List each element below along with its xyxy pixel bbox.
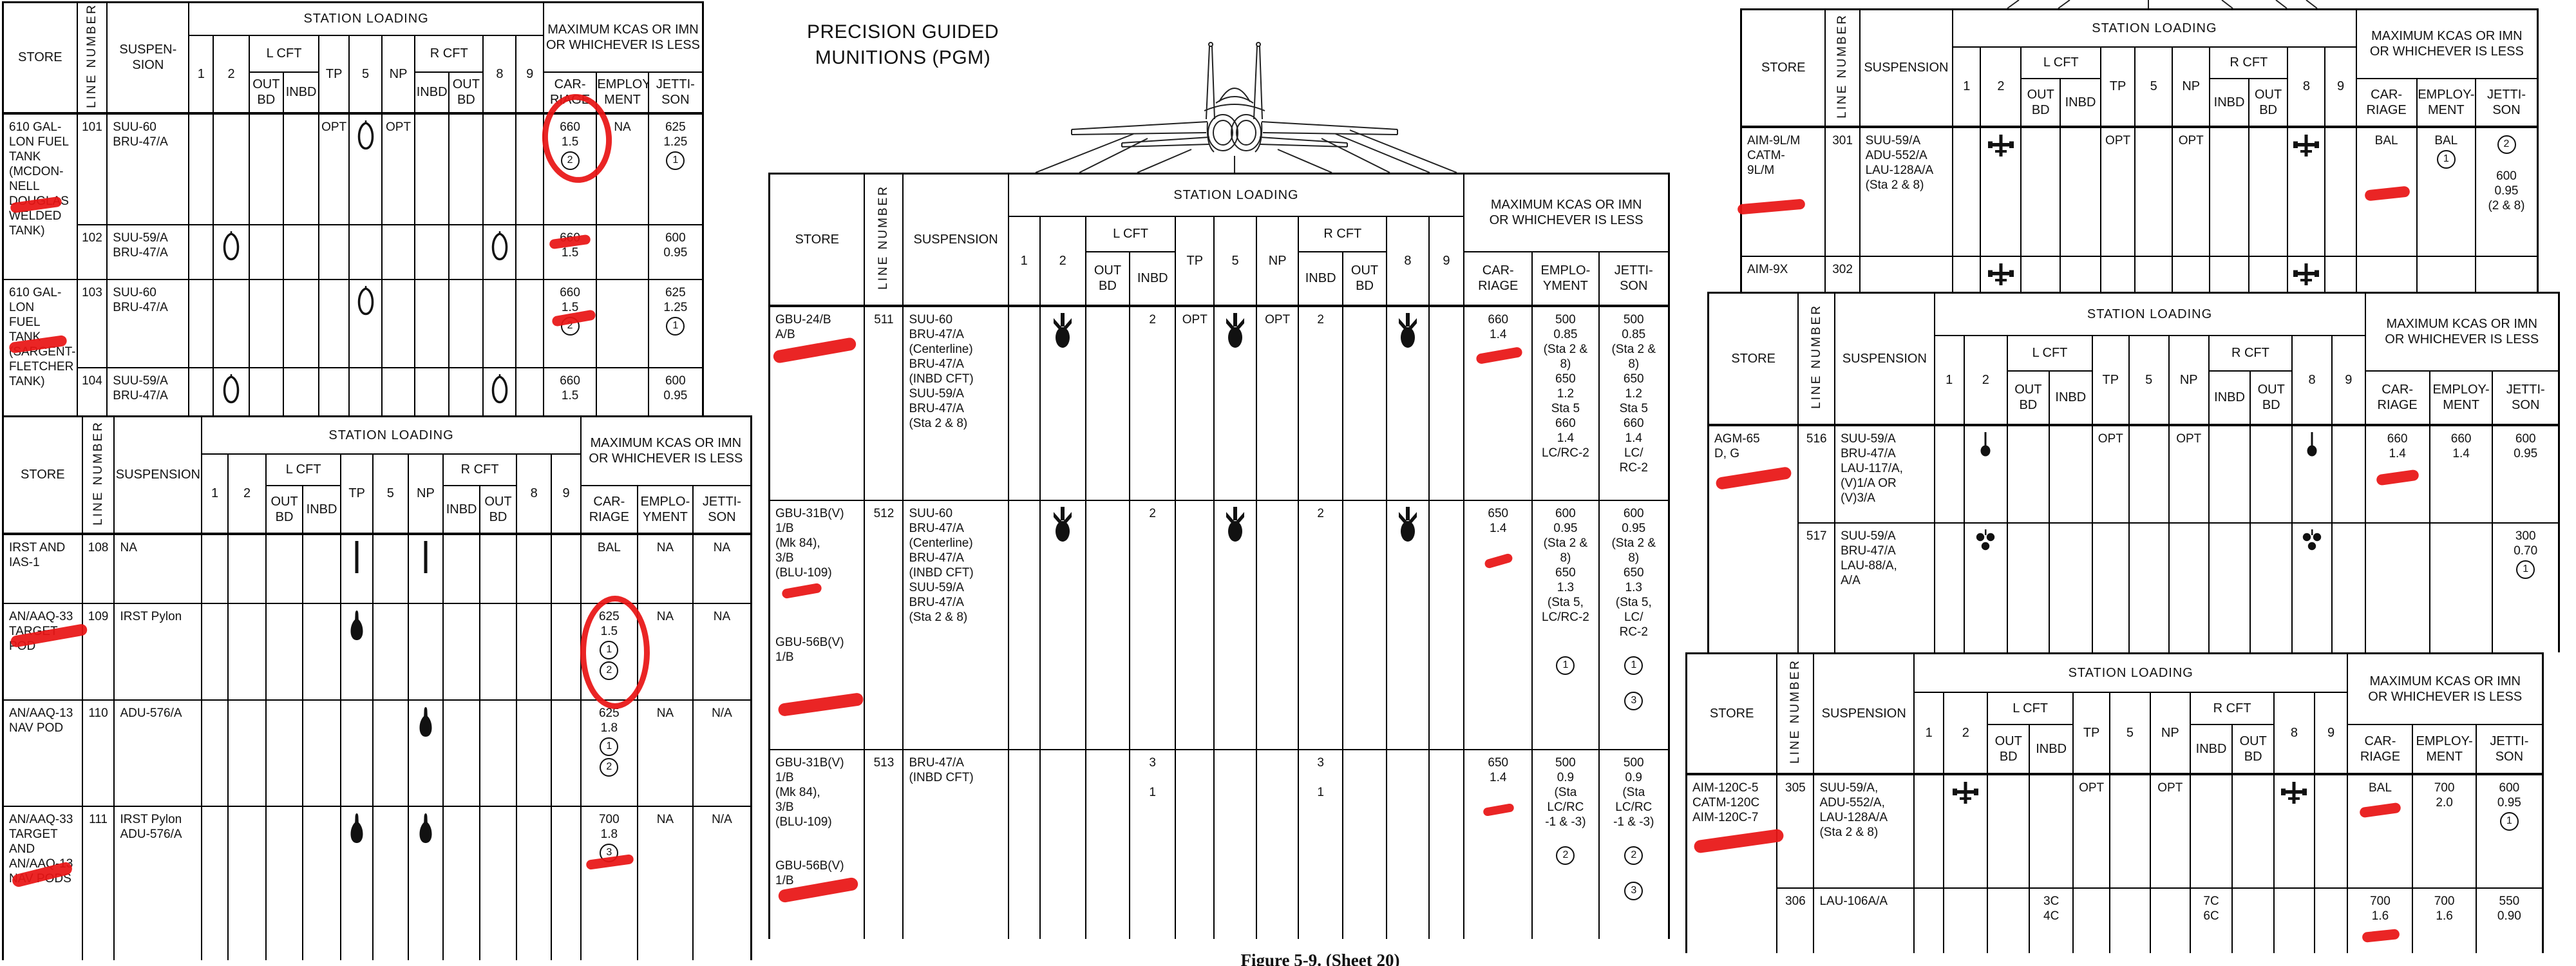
header-line-number: LINE NUMBER: [864, 174, 903, 306]
header-sta-9: 9: [2325, 47, 2356, 127]
cell-station-8: [1343, 500, 1387, 750]
cell-station-3: [303, 534, 341, 603]
cell-employment: 600 0.95 (Sta 2 & 8) 650 1.3 (Sta 5, LC/…: [1532, 500, 1598, 750]
header-jettison: JETTI- SON: [1599, 252, 1669, 306]
cell-station-6: [408, 534, 444, 603]
cell-station-1: [1040, 306, 1086, 500]
cell-suspension: SUU-59/A BRU-47/A LAU-117/A, (V)1/A OR (…: [1835, 425, 1934, 523]
cell-jettison: [2476, 256, 2538, 294]
cell-store: AIM-120C-5 CATM-120C AIM-120C-7: [1687, 774, 1777, 954]
cell-station-2: [2021, 127, 2060, 256]
cell-store: AN/AAQ-33 TARGET POD: [3, 603, 82, 700]
cell-station-10: [1429, 500, 1464, 750]
header-suspension: SUSPEN- SION: [107, 3, 189, 113]
cell-station-10: [551, 700, 580, 806]
header-sta-tp: TP: [1175, 216, 1214, 306]
cell-station-9: [2287, 256, 2325, 294]
cell-jettison: N/A: [693, 700, 752, 806]
header-sta-1: 1: [189, 35, 213, 113]
fuel-tank-icon: [222, 231, 241, 245]
cell-employment: NA: [638, 806, 693, 961]
missile-icon: [2280, 781, 2307, 795]
cell-line-number: 305: [1777, 774, 1814, 888]
circled-note-number: 2: [1624, 846, 1643, 865]
cell-store: GBU-24/B A/B: [770, 306, 865, 500]
cell-station-2: [266, 806, 303, 961]
cell-jettison: 500 0.85 (Sta 2 & 8) 650 1.2 Sta 5 660 1…: [1599, 306, 1669, 500]
header-max-kcas: MAXIMUM KCAS OR IMN OR WHICHEVER IS LESS: [581, 417, 752, 486]
cell-carriage: BAL: [2347, 774, 2412, 888]
header-r-cft: R CFT: [415, 35, 483, 72]
circled-note-number: 2: [600, 758, 618, 777]
cell-station-10: [2325, 127, 2356, 256]
header-l-cft: L CFT: [2007, 336, 2092, 371]
circled-note-number: 3: [1624, 692, 1643, 710]
cell-station-8: [449, 225, 483, 279]
cell-suspension: SUU-59/A BRU-47/A: [107, 225, 189, 279]
header-sta-8: 8: [2287, 47, 2325, 127]
cell-station-5: [2135, 256, 2172, 294]
cell-station-8: [449, 368, 483, 415]
store-row-516: AGM-65 D, G516SUU-59/A BRU-47/A LAU-117/…: [1709, 425, 2559, 523]
cell-station-9: [1387, 750, 1429, 940]
circled-note-number: 1: [2516, 560, 2535, 579]
store-row-511: GBU-24/B A/B511SUU-60 BRU-47/A (Centerli…: [770, 306, 1669, 500]
cell-station-0: [189, 113, 213, 225]
cell-jettison: 550 0.90: [2476, 888, 2543, 954]
cell-station-4: [319, 279, 349, 368]
cell-station-0: [1914, 774, 1944, 888]
store-row-110: AN/AAQ-13 NAV POD110ADU-576/A625 1.8 1 2…: [3, 700, 752, 806]
cell-station-6: OPT: [1256, 306, 1299, 500]
cell-station-3: [2049, 523, 2092, 653]
header-sta-1: 1: [1914, 692, 1944, 774]
cell-station-2: [1086, 750, 1130, 940]
section-title-line1: PRECISION GUIDED: [787, 19, 1019, 45]
cell-jettison: 600 0.95: [649, 225, 703, 279]
header-suspension: SUSPENSION: [114, 417, 202, 534]
cell-station-1: [1964, 425, 2007, 523]
cell-station-9: [483, 113, 516, 225]
bomb-icon: [1396, 507, 1419, 520]
cell-line-number: 108: [82, 534, 115, 603]
cell-jettison: 625 1.25 1: [649, 279, 703, 368]
circled-note-number: 1: [1624, 656, 1643, 675]
pod-icon: [349, 610, 365, 623]
cell-station-9: [2287, 127, 2325, 256]
header-sta-8: 8: [2292, 336, 2332, 425]
header-l-cft: L CFT: [1987, 692, 2073, 724]
cell-station-6: OPT: [382, 113, 415, 225]
cell-station-4: OPT: [319, 113, 349, 225]
bomb-icon: [1051, 313, 1074, 327]
cell-station-2: [2007, 425, 2049, 523]
cell-station-7: [415, 225, 449, 279]
cell-station-3: [2049, 425, 2092, 523]
cell-station-6: [382, 279, 415, 368]
header-r-outbd: OUT BD: [449, 72, 483, 113]
cell-station-1: [1980, 127, 2021, 256]
cell-carriage: BAL: [581, 534, 638, 603]
header-l-outbd: OUT BD: [1987, 724, 2029, 774]
cell-station-8: [2232, 774, 2274, 888]
cell-station-0: [202, 806, 228, 961]
cell-station-2: [249, 368, 283, 415]
header-l-cft: L CFT: [266, 454, 341, 486]
cell-station-7: [443, 700, 480, 806]
cell-station-7: 2: [1298, 306, 1342, 500]
store-row-111: AN/AAQ-33 TARGET AND AN/AAQ-13 NAV PODS1…: [3, 806, 752, 961]
bomb-icon: [1396, 313, 1419, 327]
cell-station-5: [349, 368, 382, 415]
cell-station-2: [1086, 500, 1130, 750]
header-sta-tp: TP: [319, 35, 349, 113]
cell-carriage: [2365, 523, 2430, 653]
red-annotation-t2-109-carriage-circle: [580, 596, 650, 709]
cell-line-number: 109: [82, 603, 115, 700]
header-suspension: SUSPENSION: [1835, 293, 1934, 425]
header-sta-9: 9: [516, 35, 543, 113]
cell-line-number: 306: [1777, 888, 1814, 954]
header-jettison: JETTI- SON: [2476, 79, 2538, 127]
header-jettison: JETTI- SON: [2476, 724, 2543, 774]
cell-station-2: [1086, 306, 1130, 500]
header-carriage: CAR- RIAGE: [2356, 79, 2417, 127]
header-sta-9: 9: [1429, 216, 1464, 306]
cell-station-4: [2092, 523, 2129, 653]
cell-carriage: 660 1.5: [544, 368, 597, 415]
header-l-inbd: INBD: [2029, 724, 2073, 774]
cell-station-4: OPT: [1175, 306, 1214, 500]
header-sta-np: NP: [2169, 336, 2209, 425]
cell-station-7: [2210, 256, 2249, 294]
f15-front-view-drawing: [960, 26, 1539, 173]
cell-station-2: [249, 113, 283, 225]
stores-table-fuel-tanks: STORELINE NUMBERSUSPEN- SIONSTATION LOAD…: [2, 1, 704, 415]
cell-station-9: [2292, 523, 2332, 653]
header-sta-1: 1: [1953, 47, 1980, 127]
fuel-tank-icon: [222, 374, 241, 388]
cell-station-6: OPT: [2150, 774, 2190, 888]
cell-station-8: [449, 279, 483, 368]
cell-station-7: [415, 279, 449, 368]
cell-station-2: [249, 279, 283, 368]
header-l-inbd: INBD: [1130, 252, 1175, 306]
header-sta-tp: TP: [2101, 47, 2135, 127]
cell-station-8: [1343, 306, 1387, 500]
cell-station-2: [2021, 256, 2060, 294]
fuel-tank-icon: [356, 286, 375, 299]
cell-station-2: [249, 225, 283, 279]
cell-suspension: IRST Pylon ADU-576/A: [114, 806, 202, 961]
cell-station-10: [2325, 256, 2356, 294]
cell-jettison: 600 0.95: [649, 368, 703, 415]
cell-station-1: [1980, 256, 2021, 294]
cell-station-7: [2209, 523, 2251, 653]
cell-station-4: [2101, 256, 2135, 294]
cell-station-1: [1040, 500, 1086, 750]
cell-station-4: [341, 534, 373, 603]
cell-employment: [596, 279, 648, 368]
header-sta-np: NP: [2172, 47, 2210, 127]
store-row-306: 306LAU-106A/A3C 4C7C 6C700 1.6700 1.6550…: [1687, 888, 2543, 954]
cell-station-5: [373, 806, 408, 961]
header-sta-5: 5: [349, 35, 382, 113]
header-sta-tp: TP: [2073, 692, 2110, 774]
cell-station-5: [1214, 750, 1256, 940]
header-sta-np: NP: [408, 454, 444, 534]
table-fragment-aim9: STORELINE NUMBERSUSPENSIONSTATION LOADIN…: [1740, 8, 2539, 293]
cell-station-10: [1429, 750, 1464, 940]
store-row-108: IRST AND IAS-1108NABALNANA: [3, 534, 752, 603]
cell-suspension: IRST Pylon: [114, 603, 202, 700]
cell-station-0: [1914, 888, 1944, 954]
cell-jettison: NA: [693, 534, 752, 603]
cell-suspension: SUU-59/A BRU-47/A LAU-88/A, A/A: [1835, 523, 1934, 653]
cell-station-5: [2135, 127, 2172, 256]
stores-table-aim9: STORELINE NUMBERSUSPENSIONSTATION LOADIN…: [1740, 8, 2539, 293]
cell-suspension: SUU-59/A, ADU-552/A, LAU-128A/A (Sta 2 &…: [1814, 774, 1913, 888]
cell-station-5: [349, 279, 382, 368]
header-l-outbd: OUT BD: [266, 486, 303, 534]
cell-suspension: SUU-60 BRU-47/A (Centerline) BRU-47/A (I…: [903, 306, 1008, 500]
header-r-outbd: OUT BD: [2250, 371, 2292, 425]
stores-table-aim120: STORELINE NUMBERSUSPENSIONSTATION LOADIN…: [1685, 652, 2544, 953]
cell-store: AIM-9X: [1741, 256, 1826, 294]
cell-line-number: 511: [864, 306, 903, 500]
bomb-icon: [1224, 507, 1247, 520]
header-sta-5: 5: [2110, 692, 2150, 774]
cell-store: GBU-31B(V) 1/B (Mk 84), 3/B (BLU-109)GBU…: [770, 750, 865, 940]
cell-station-8: [480, 534, 516, 603]
pod-icon: [418, 706, 433, 720]
cell-station-7: [443, 534, 480, 603]
cell-station-2: [1987, 888, 2029, 954]
cell-station-0: [1935, 523, 1964, 653]
header-sta-tp: TP: [341, 454, 373, 534]
cell-carriage: 625 1.8 1 2: [581, 700, 638, 806]
cell-carriage: 650 1.4: [1464, 500, 1532, 750]
cell-station-6: OPT: [2172, 127, 2210, 256]
cell-station-4: [341, 806, 373, 961]
header-l-outbd: OUT BD: [249, 72, 283, 113]
cell-carriage: 660 1.4: [1464, 306, 1532, 500]
missile-icon: [1952, 781, 1979, 795]
header-sta-5: 5: [2129, 336, 2169, 425]
header-r-inbd: INBD: [2210, 79, 2249, 127]
cell-line-number: 102: [77, 225, 108, 279]
cell-station-2: [266, 603, 303, 700]
header-sta-2: 2: [1040, 216, 1086, 306]
header-r-outbd: OUT BD: [2249, 79, 2288, 127]
stores-table-pgm: STORELINE NUMBERSUSPENSIONSTATION LOADIN…: [768, 173, 1670, 939]
cell-station-7: [2209, 425, 2251, 523]
section-title: PRECISION GUIDED MUNITIONS (PGM): [787, 19, 1019, 71]
header-carriage: CAR- RIAGE: [2365, 371, 2430, 425]
header-jettison: JETTI- SON: [693, 486, 752, 534]
header-r-inbd: INBD: [1298, 252, 1342, 306]
cell-station-10: [2315, 888, 2348, 954]
header-max-kcas: MAXIMUM KCAS OR IMN OR WHICHEVER IS LESS: [1464, 174, 1669, 252]
cell-station-6: [1256, 750, 1299, 940]
cell-carriage: [2356, 256, 2417, 294]
cell-employment: 500 0.9 (Sta LC/RC -1 & -3) 2: [1532, 750, 1598, 940]
fuel-tank-icon: [490, 374, 509, 388]
cell-station-7: [2210, 127, 2249, 256]
cell-station-9: [516, 603, 552, 700]
header-employment: EMPLOY- MENT: [2412, 724, 2476, 774]
cell-station-1: [228, 700, 266, 806]
cell-employment: 500 0.85 (Sta 2 & 8) 650 1.2 Sta 5 660 1…: [1532, 306, 1598, 500]
cell-station-10: [551, 603, 580, 700]
cell-station-9: [516, 806, 552, 961]
cell-station-1: [228, 603, 266, 700]
header-sta-5: 5: [373, 454, 408, 534]
header-l-outbd: OUT BD: [2021, 79, 2060, 127]
cell-line-number: 104: [77, 368, 108, 415]
cell-station-3: [303, 806, 341, 961]
cell-store: AN/AAQ-13 NAV POD: [3, 700, 82, 806]
cell-station-9: [483, 368, 516, 415]
header-r-inbd: INBD: [415, 72, 449, 113]
cell-station-5: [349, 113, 382, 225]
header-max-kcas: MAXIMUM KCAS OR IMN OR WHICHEVER IS LESS: [2356, 10, 2538, 79]
header-l-inbd: INBD: [2060, 79, 2101, 127]
header-l-cft: L CFT: [2021, 47, 2101, 79]
cell-station-5: [373, 700, 408, 806]
cell-station-10: [516, 368, 543, 415]
cell-station-4: [1175, 750, 1214, 940]
cell-station-1: [213, 225, 249, 279]
cell-jettison: 500 0.9 (Sta LC/RC -1 & -3) 2 3: [1599, 750, 1669, 940]
header-r-inbd: INBD: [2190, 724, 2232, 774]
cell-line-number: 101: [77, 113, 108, 225]
cell-jettison: 600 0.95 1: [2476, 774, 2543, 888]
missile-icon: [1987, 134, 2014, 147]
header-store: STORE: [3, 417, 82, 534]
cell-station-10: [551, 806, 580, 961]
cell-store: AGM-65 D, G: [1709, 425, 1799, 653]
cell-suspension: ADU-576/A: [114, 700, 202, 806]
header-line-number: LINE NUMBER: [1798, 293, 1835, 425]
header-carriage: CAR- RIAGE: [1464, 252, 1532, 306]
cell-station-6: [408, 603, 444, 700]
cell-jettison: 300 0.70 1: [2492, 523, 2559, 653]
header-line-number: LINE NUMBER: [1825, 10, 1859, 127]
cell-station-0: [189, 225, 213, 279]
cell-station-1: [1944, 774, 1987, 888]
cell-station-6: [382, 225, 415, 279]
cell-station-2: [2007, 523, 2049, 653]
cell-station-5: [349, 225, 382, 279]
header-sta-8: 8: [1387, 216, 1429, 306]
cell-station-3: 2: [1130, 500, 1175, 750]
header-station-loading: STATION LOADING: [189, 3, 543, 35]
cell-employment: [596, 368, 648, 415]
cell-suspension: LAU-106A/A: [1814, 888, 1913, 954]
cell-suspension: SUU-60 BRU-47/A: [107, 279, 189, 368]
header-store: STORE: [3, 3, 77, 113]
header-line-number: LINE NUMBER: [77, 3, 108, 113]
cell-station-1: [213, 368, 249, 415]
store-row-513: GBU-31B(V) 1/B (Mk 84), 3/B (BLU-109)GBU…: [770, 750, 1669, 940]
cell-station-2: [266, 700, 303, 806]
pod-icon: [418, 813, 433, 826]
header-max-kcas: MAXIMUM KCAS OR IMN OR WHICHEVER IS LESS: [2347, 654, 2543, 724]
maverick-icon: [2306, 432, 2318, 446]
cell-station-8: [2249, 256, 2288, 294]
circled-note-number: 1: [2500, 812, 2519, 831]
header-r-cft: R CFT: [1298, 216, 1387, 252]
header-employment: EMPLOY- MENT: [2417, 79, 2476, 127]
header-sta-2: 2: [213, 35, 249, 113]
cell-station-4: [1175, 500, 1214, 750]
circled-note-number: 3: [1624, 882, 1643, 900]
header-station-loading: STATION LOADING: [1009, 174, 1464, 216]
cell-station-8: [1343, 750, 1387, 940]
triple-icon: [1974, 529, 1997, 543]
header-l-inbd: INBD: [2049, 371, 2092, 425]
cell-station-6: [2150, 888, 2190, 954]
cell-employment: 700 1.6: [2412, 888, 2476, 954]
cell-station-6: OPT: [2169, 425, 2209, 523]
fuel-tank-icon: [356, 120, 375, 134]
cell-station-7: 2: [1298, 500, 1342, 750]
cell-station-6: [382, 368, 415, 415]
circled-note-number: 1: [2437, 150, 2456, 169]
header-sta-2: 2: [1944, 692, 1987, 774]
missile-icon: [2293, 263, 2320, 276]
cell-suspension: [1860, 256, 1953, 294]
cell-station-7: [415, 368, 449, 415]
cell-station-4: [319, 368, 349, 415]
header-sta-np: NP: [1256, 216, 1299, 306]
header-sta-1: 1: [1009, 216, 1040, 306]
cell-jettison: N/A: [693, 806, 752, 961]
header-r-cft: R CFT: [2209, 336, 2292, 371]
cell-station-8: [2232, 888, 2274, 954]
header-sta-2: 2: [1980, 47, 2021, 127]
cell-station-5: [2110, 888, 2150, 954]
store-row-305: AIM-120C-5 CATM-120C AIM-120C-7305SUU-59…: [1687, 774, 2543, 888]
header-r-outbd: OUT BD: [480, 486, 516, 534]
header-sta-1: 1: [1935, 336, 1964, 425]
cell-station-10: [2315, 774, 2348, 888]
header-suspension: SUSPENSION: [903, 174, 1008, 306]
header-sta-tp: TP: [2092, 336, 2129, 425]
table-fragment-aim120: STORELINE NUMBERSUSPENSIONSTATION LOADIN…: [1685, 652, 2544, 953]
header-r-inbd: INBD: [2209, 371, 2251, 425]
header-l-cft: L CFT: [249, 35, 319, 72]
cell-station-1: [1040, 750, 1086, 940]
cell-station-3: [2060, 256, 2101, 294]
cell-station-4: [2073, 888, 2110, 954]
header-station-loading: STATION LOADING: [202, 417, 580, 454]
cell-station-6: [1256, 500, 1299, 750]
cell-station-3: [283, 113, 319, 225]
header-store: STORE: [1709, 293, 1799, 425]
header-store: STORE: [1741, 10, 1826, 127]
cell-store: AIM-9L/M CATM- 9L/M: [1741, 127, 1826, 256]
cell-station-3: [283, 279, 319, 368]
cell-station-4: OPT: [2073, 774, 2110, 888]
cell-station-8: [449, 113, 483, 225]
header-max-kcas: MAXIMUM KCAS OR IMN OR WHICHEVER IS LESS: [544, 3, 703, 72]
cell-store: IRST AND IAS-1: [3, 534, 82, 603]
cell-jettison: 600 0.95 (Sta 2 & 8) 650 1.3 (Sta 5, LC/…: [1599, 500, 1669, 750]
cell-station-10: [1429, 306, 1464, 500]
cell-suspension: NA: [114, 534, 202, 603]
